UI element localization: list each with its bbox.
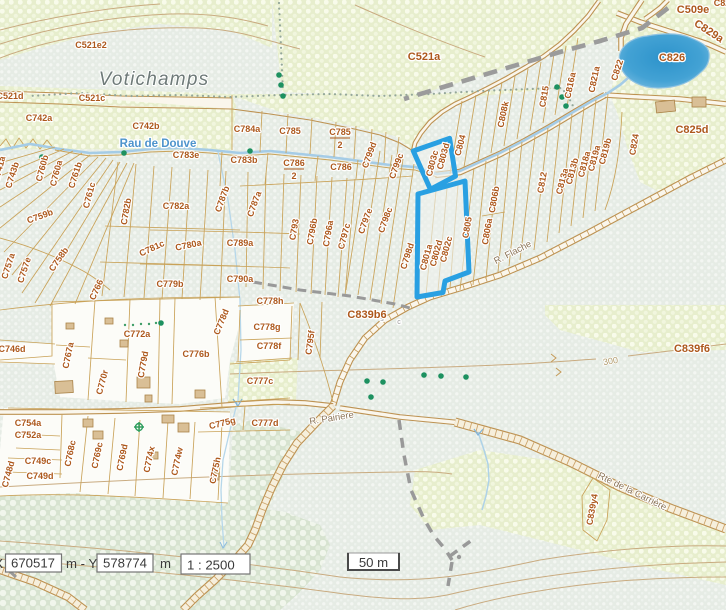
svg-text:1 : 2500: 1 : 2500	[187, 558, 235, 573]
svg-text:C82: C82	[714, 0, 726, 8]
svg-text:C746d: C746d	[0, 344, 26, 354]
svg-text:C783b: C783b	[230, 155, 258, 165]
svg-text:2: 2	[337, 140, 342, 150]
svg-text:C778g: C778g	[253, 322, 280, 332]
svg-text:C777d: C777d	[251, 418, 278, 428]
svg-text:C790a: C790a	[227, 274, 255, 284]
svg-text:C839b6: C839b6	[347, 309, 386, 321]
svg-text:m - Y: m - Y	[66, 556, 97, 571]
svg-text:50 m: 50 m	[359, 555, 388, 570]
svg-text:C521c: C521c	[79, 93, 106, 103]
svg-text:C783e: C783e	[173, 150, 200, 160]
svg-text:C521d: C521d	[0, 91, 24, 101]
svg-text:C778h: C778h	[256, 296, 283, 306]
svg-text:C521e2: C521e2	[75, 40, 107, 50]
svg-text:C784a: C784a	[234, 124, 262, 134]
svg-text:C825d: C825d	[675, 124, 708, 136]
svg-text:C742b: C742b	[132, 121, 160, 131]
svg-text:C839f6: C839f6	[674, 343, 710, 355]
svg-text:C776b: C776b	[182, 349, 210, 359]
svg-text:C789a: C789a	[227, 238, 255, 248]
svg-text:C772a: C772a	[124, 329, 152, 339]
svg-text:C785: C785	[279, 126, 301, 136]
svg-text:C785: C785	[329, 127, 351, 137]
svg-text:670517: 670517	[11, 556, 55, 571]
svg-text:X: X	[0, 556, 3, 571]
svg-text:C786: C786	[330, 162, 352, 172]
svg-text:C777c: C777c	[247, 376, 274, 386]
svg-text:C509e: C509e	[677, 4, 709, 16]
svg-text:C779b: C779b	[156, 279, 184, 289]
svg-text:m: m	[160, 556, 171, 571]
svg-text:C782a: C782a	[163, 201, 191, 211]
svg-text:C786: C786	[283, 158, 305, 168]
svg-text:C754a: C754a	[15, 418, 43, 428]
svg-text:C749c: C749c	[25, 456, 52, 466]
svg-text:C778f: C778f	[257, 341, 283, 351]
svg-text:2: 2	[291, 171, 296, 181]
svg-text:578774: 578774	[103, 556, 147, 571]
svg-text:C521a: C521a	[408, 51, 441, 63]
svg-text:C749d: C749d	[26, 471, 53, 481]
svg-text:C742a: C742a	[26, 113, 54, 123]
svg-text:C826: C826	[659, 52, 685, 64]
svg-text:Votichamps: Votichamps	[99, 69, 210, 90]
svg-text:C752a: C752a	[15, 430, 43, 440]
svg-text:Rau de Douve: Rau de Douve	[120, 138, 197, 150]
svg-text:c: c	[397, 319, 401, 326]
